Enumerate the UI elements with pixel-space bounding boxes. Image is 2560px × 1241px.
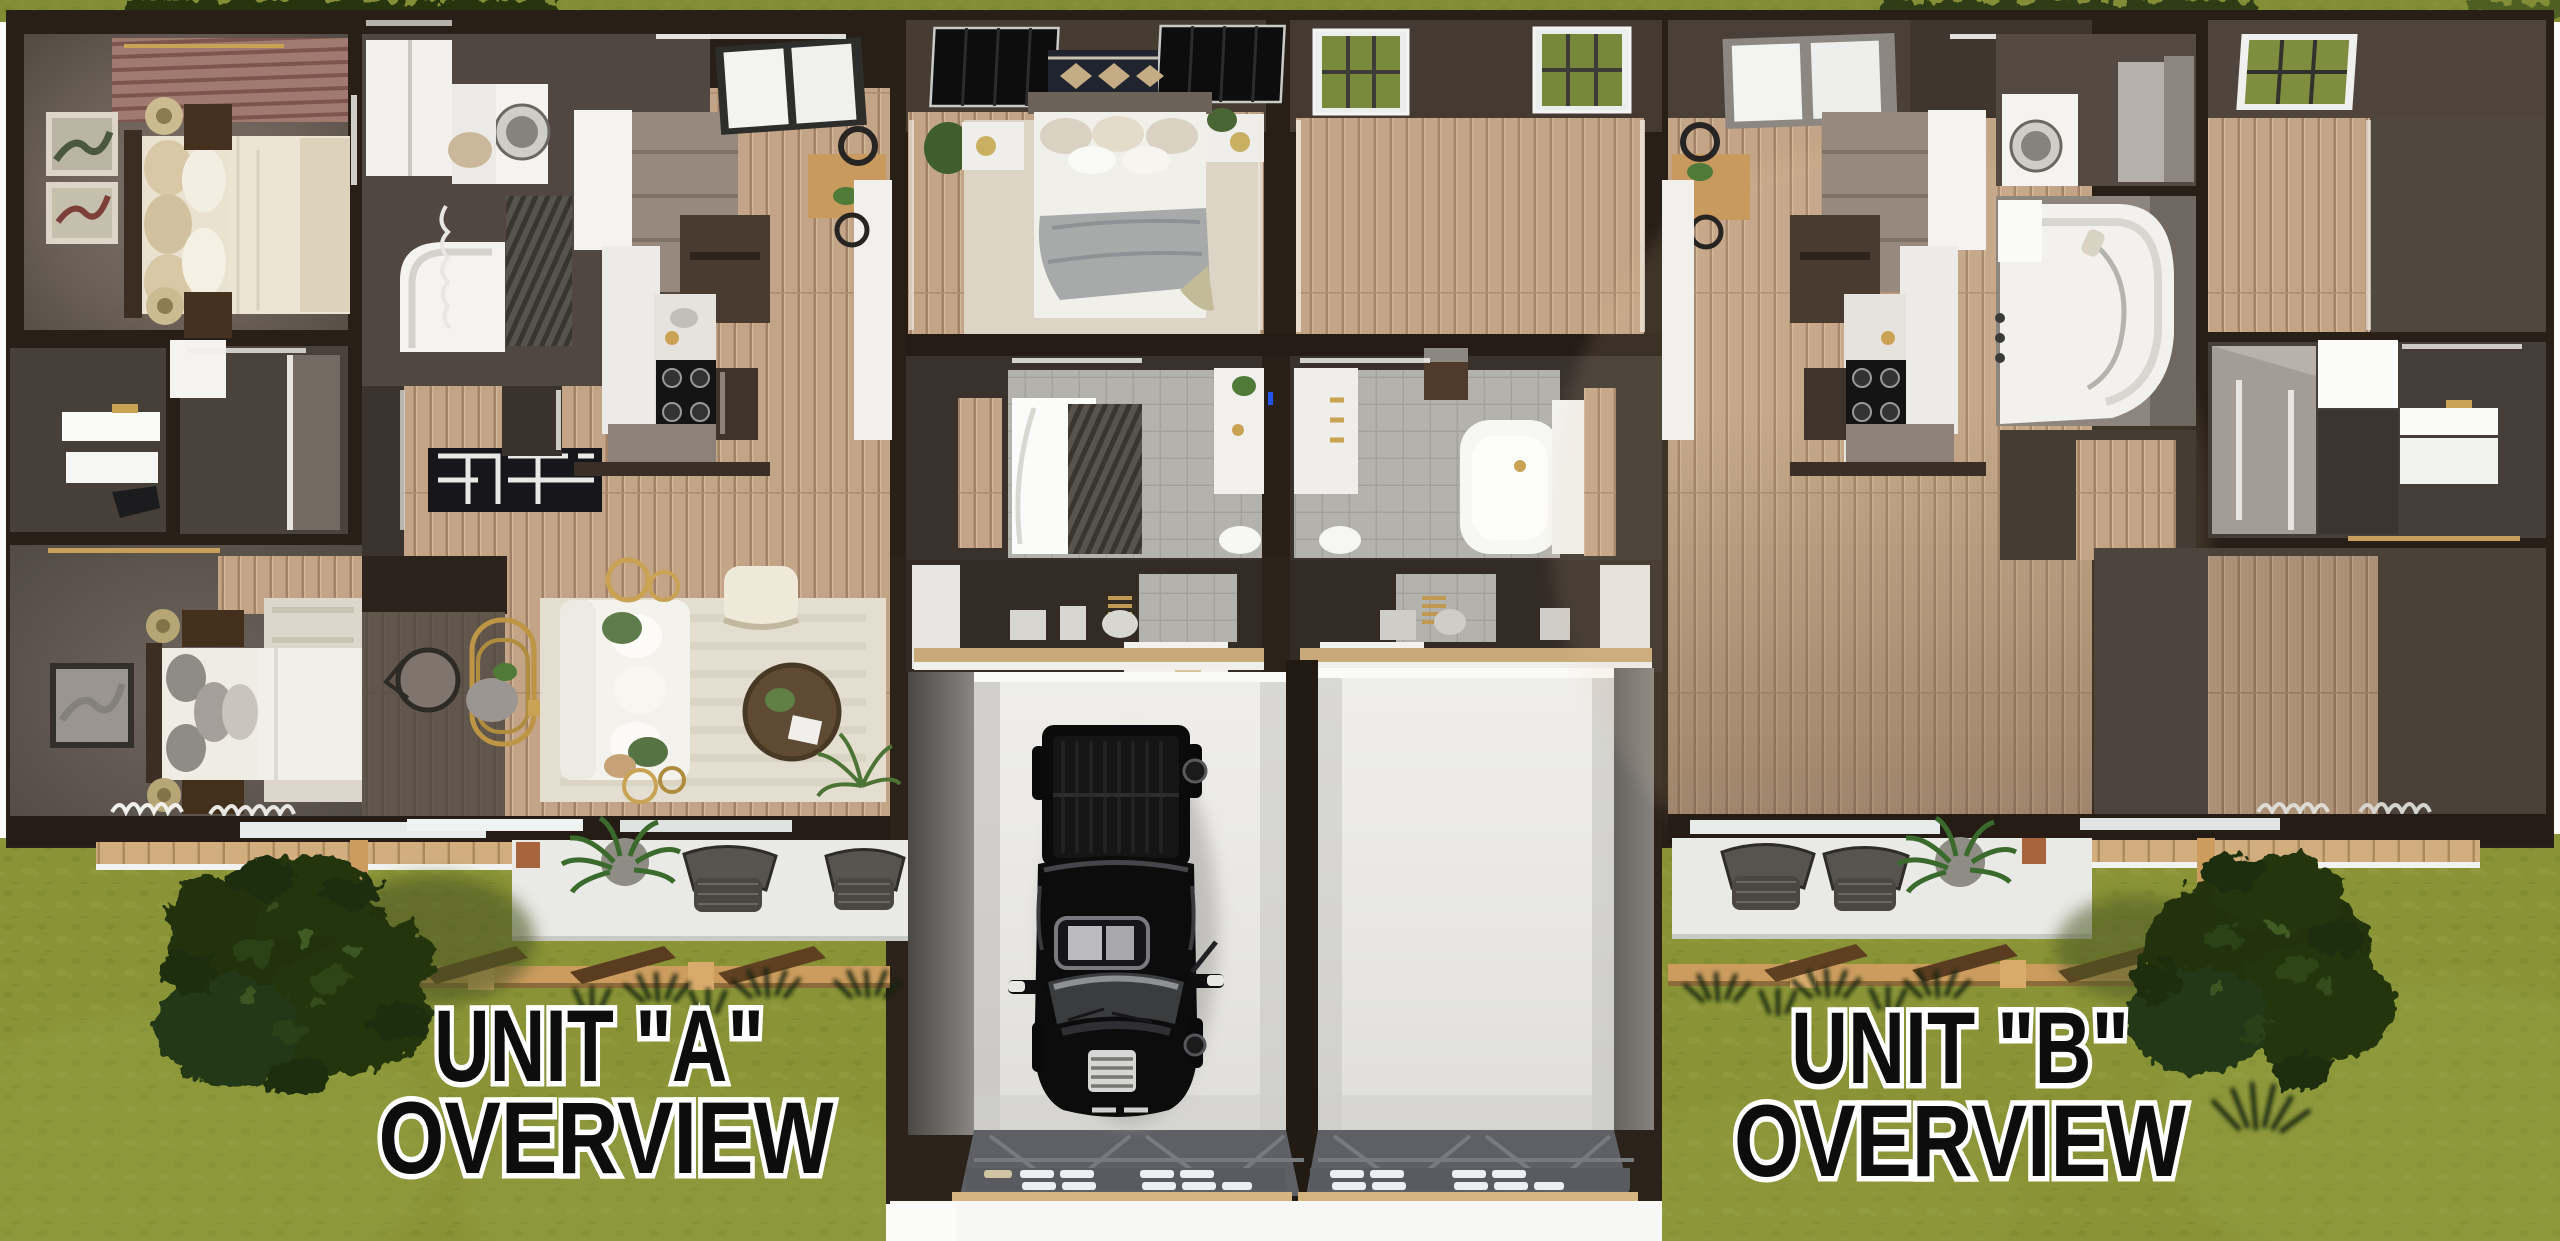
- svg-text:OVERVIEW: OVERVIEW: [379, 1081, 835, 1195]
- svg-text:OVERVIEW: OVERVIEW: [1734, 1084, 2187, 1198]
